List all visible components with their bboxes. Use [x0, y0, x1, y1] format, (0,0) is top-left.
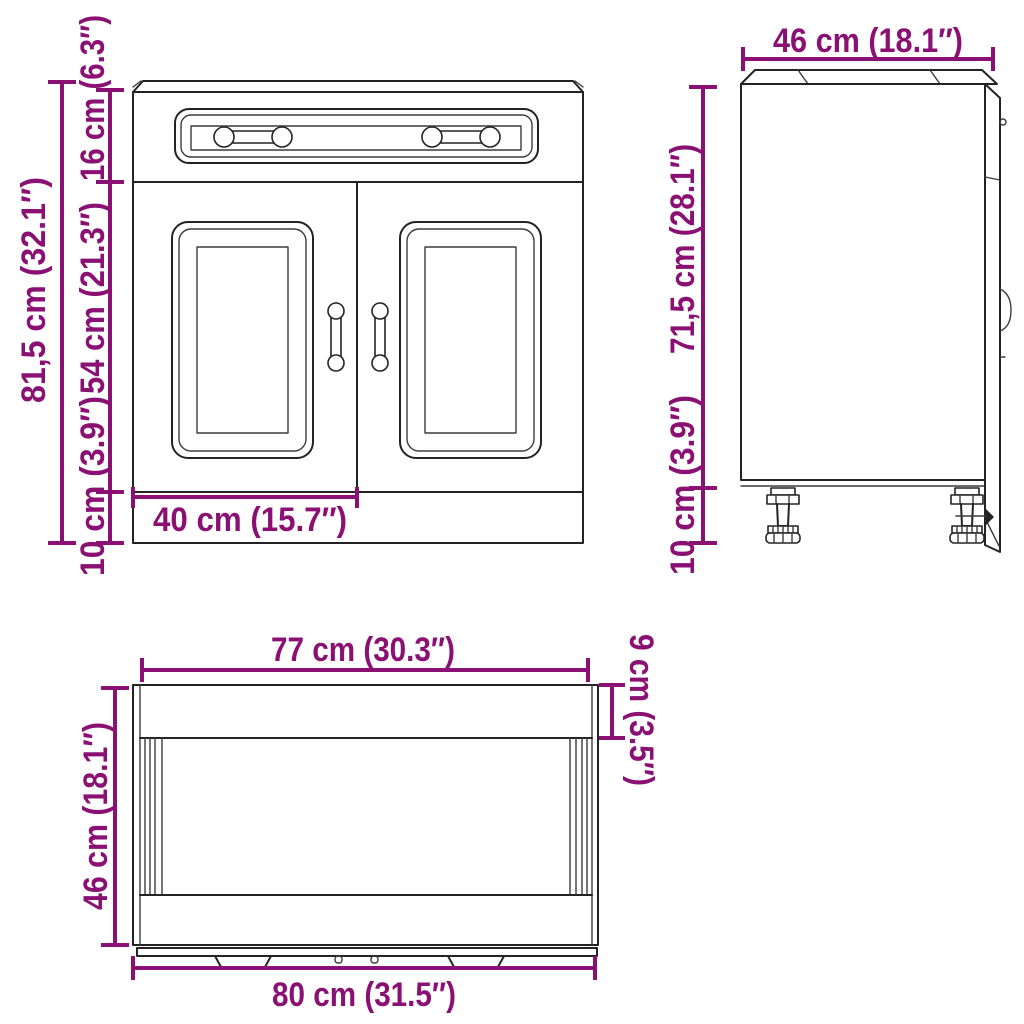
top-back-offset-dim-line [599, 685, 625, 738]
top-side-panels [140, 685, 592, 945]
side-cabinet-outline [741, 70, 1011, 552]
top-hinge-right [371, 956, 378, 963]
top-hinge-left [335, 956, 342, 963]
top-door-front-strip [137, 948, 597, 967]
top-left-panel-edges [145, 738, 162, 895]
front-plinth-height-label: 10 cm (3.9″) [74, 396, 112, 576]
front-drawer-handle-right [422, 127, 500, 147]
front-view: 81,5 cm (32.1″) 16 cm (6.3″) 54 cm (21.3… [15, 15, 583, 576]
side-leg-adjuster-flag [986, 509, 994, 525]
front-door-height-label: 54 cm (21.3″) [74, 202, 112, 394]
side-top-joints [798, 70, 940, 84]
top-back-offset-label: 9 cm (3.5″) [622, 634, 660, 786]
front-cabinet-outline [133, 81, 583, 543]
front-total-height-label: 81,5 cm (32.1″) [15, 177, 53, 403]
front-drawer-front [175, 109, 538, 163]
side-carcass [741, 84, 985, 480]
front-door-right [372, 222, 541, 458]
side-carcass-height-label: 71,5 cm (28.1″) [664, 144, 702, 354]
front-door-width-label: 40 cm (15.7″) [153, 501, 347, 539]
front-door-handle-left [328, 303, 344, 371]
front-drawer-height-label: 16 cm (6.3″) [74, 15, 112, 181]
side-view: 46 cm (18.1″) 71,5 cm (28.1″) 10 cm (3.9… [664, 22, 1011, 575]
cabinet-dimension-drawing: 81,5 cm (32.1″) 16 cm (6.3″) 54 cm (21.3… [0, 0, 1024, 1024]
top-carcass [133, 685, 598, 945]
front-drawer-handle-left [214, 127, 292, 147]
top-door-handle-right [448, 956, 504, 967]
front-door-handle-right [372, 303, 388, 371]
top-right-panel-edges [570, 738, 587, 895]
front-door-left [172, 222, 344, 458]
side-dimensions: 46 cm (18.1″) 71,5 cm (28.1″) 10 cm (3.9… [664, 22, 993, 575]
side-depth-label: 46 cm (18.1″) [773, 22, 963, 60]
side-door-handle-bump [1000, 289, 1011, 331]
side-leg-left [766, 488, 800, 543]
top-total-width-label: 80 cm (31.5″) [272, 976, 456, 1014]
top-door-handle-left [215, 956, 271, 967]
side-leg-height-label: 10 cm (3.9″) [664, 395, 702, 575]
top-cabinet-outline [133, 685, 598, 967]
side-door-edge [985, 84, 1011, 552]
front-countertop [133, 81, 583, 92]
side-leg-right [950, 488, 999, 546]
product-dimension-diagram: 81,5 cm (32.1″) 16 cm (6.3″) 54 cm (21.3… [0, 0, 1024, 1024]
top-carcass-width-label: 77 cm (30.3″) [271, 631, 455, 669]
side-top-face [741, 70, 997, 84]
top-depth-label: 46 cm (18.1″) [77, 722, 115, 910]
top-view: 77 cm (30.3″) 9 cm (3.5″) 46 cm (18.1″) … [77, 631, 660, 1014]
